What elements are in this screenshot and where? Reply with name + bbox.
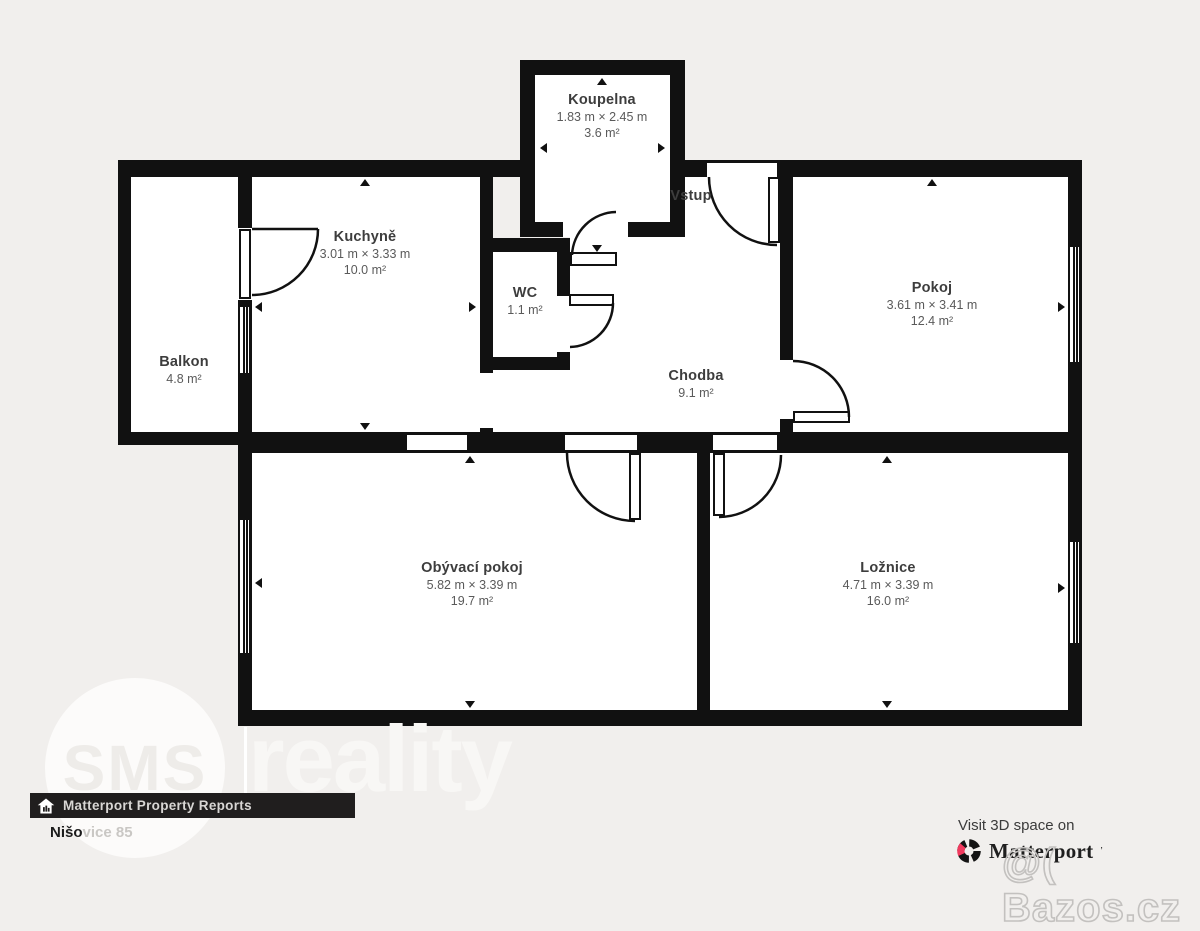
door-opening bbox=[713, 435, 777, 450]
visit-3d-label: Visit 3D space on bbox=[958, 817, 1074, 834]
door-leaf bbox=[569, 294, 614, 306]
dimension-marker bbox=[1058, 583, 1065, 593]
reality-logo-text: reality bbox=[248, 712, 511, 806]
dimension-marker bbox=[1058, 302, 1065, 312]
door-leaf bbox=[768, 177, 780, 243]
door-leaf bbox=[793, 411, 850, 423]
door-opening bbox=[480, 373, 493, 428]
room-area-kuchyne bbox=[252, 177, 480, 432]
address-light-part: vice 85 bbox=[83, 824, 133, 841]
wall bbox=[118, 432, 252, 445]
address-dark-part: Nišo bbox=[50, 824, 83, 841]
wall bbox=[480, 357, 570, 370]
matterport-bar-label: Matterport Property Reports bbox=[63, 798, 252, 813]
dimension-marker bbox=[255, 302, 262, 312]
address-label: Nišovice 85 bbox=[50, 824, 133, 841]
dimension-marker bbox=[927, 179, 937, 186]
dimension-marker bbox=[540, 143, 547, 153]
dimension-marker bbox=[469, 302, 476, 312]
room-area-chodba bbox=[493, 370, 570, 432]
room-area-balkon bbox=[131, 177, 238, 432]
wall bbox=[520, 60, 535, 237]
dimension-marker bbox=[360, 423, 370, 430]
bazos-watermark: @( Bazos.cz bbox=[1002, 841, 1200, 931]
door-opening bbox=[707, 163, 777, 177]
room-label-loznice: Ložnice 4.71 m × 3.39 m 16.0 m² bbox=[843, 560, 934, 608]
dimension-marker bbox=[360, 179, 370, 186]
door-opening bbox=[780, 360, 793, 419]
dimension-marker bbox=[658, 143, 665, 153]
room-label-koupelna: Koupelna 1.83 m × 2.45 m 3.6 m² bbox=[557, 92, 648, 140]
door-leaf bbox=[713, 453, 725, 516]
wall bbox=[670, 60, 685, 237]
wall bbox=[238, 432, 1082, 453]
dimension-marker bbox=[592, 245, 602, 252]
house-icon bbox=[37, 797, 55, 815]
entrance-label: Vstup bbox=[670, 188, 711, 204]
matterport-report-bar: Matterport Property Reports bbox=[30, 793, 355, 818]
wall bbox=[118, 160, 131, 445]
door-opening bbox=[563, 222, 628, 237]
wall bbox=[520, 60, 685, 75]
room-label-balkon: Balkon 4.8 m² bbox=[159, 354, 209, 386]
door-leaf bbox=[629, 453, 641, 520]
window bbox=[1068, 540, 1081, 645]
wall bbox=[118, 160, 520, 177]
wall bbox=[697, 432, 710, 726]
room-label-chodba: Chodba 9.1 m² bbox=[668, 368, 723, 400]
room-label-wc: WC 1.1 m² bbox=[507, 285, 542, 317]
door-opening bbox=[565, 435, 637, 450]
room-label-obyvaci-pokoj: Obývací pokoj 5.82 m × 3.39 m 19.7 m² bbox=[421, 560, 523, 608]
door-leaf bbox=[570, 252, 617, 266]
dimension-marker bbox=[882, 701, 892, 708]
door-leaf bbox=[239, 229, 251, 299]
dimension-marker bbox=[882, 456, 892, 463]
dimension-marker bbox=[465, 456, 475, 463]
door-opening bbox=[407, 435, 467, 450]
matterport-icon bbox=[956, 838, 982, 864]
dimension-marker bbox=[597, 78, 607, 85]
window bbox=[238, 518, 251, 655]
dimension-marker bbox=[255, 578, 262, 588]
window bbox=[238, 305, 251, 375]
window bbox=[1068, 245, 1081, 364]
room-label-pokoj: Pokoj 3.61 m × 3.41 m 12.4 m² bbox=[887, 280, 978, 328]
room-label-kuchyne: Kuchyně 3.01 m × 3.33 m 10.0 m² bbox=[320, 229, 411, 277]
